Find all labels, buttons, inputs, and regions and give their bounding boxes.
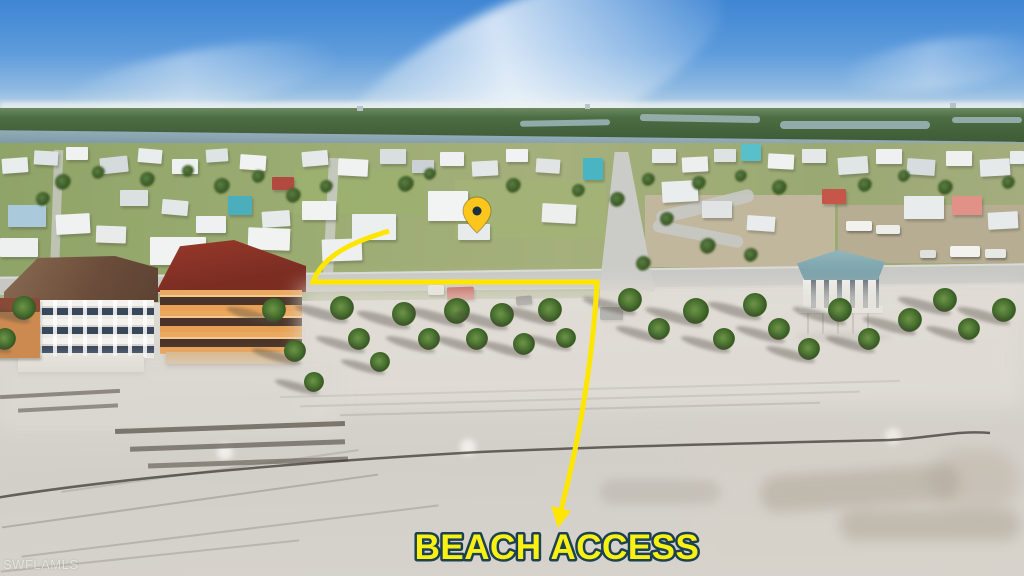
- route-arrowhead-icon: [551, 506, 571, 528]
- annotation-overlay: BEACH ACCESS: [0, 0, 1024, 576]
- route-line: [313, 231, 597, 510]
- beach-access-label: BEACH ACCESS: [415, 528, 700, 567]
- mls-watermark: SWFLAMLS: [3, 557, 79, 572]
- seaweed-line: [0, 432, 990, 498]
- aerial-listing-photo[interactable]: BEACH ACCESS SWFLAMLS: [0, 0, 1024, 576]
- map-pin-icon: [463, 197, 491, 233]
- map-pin-hole: [473, 207, 482, 216]
